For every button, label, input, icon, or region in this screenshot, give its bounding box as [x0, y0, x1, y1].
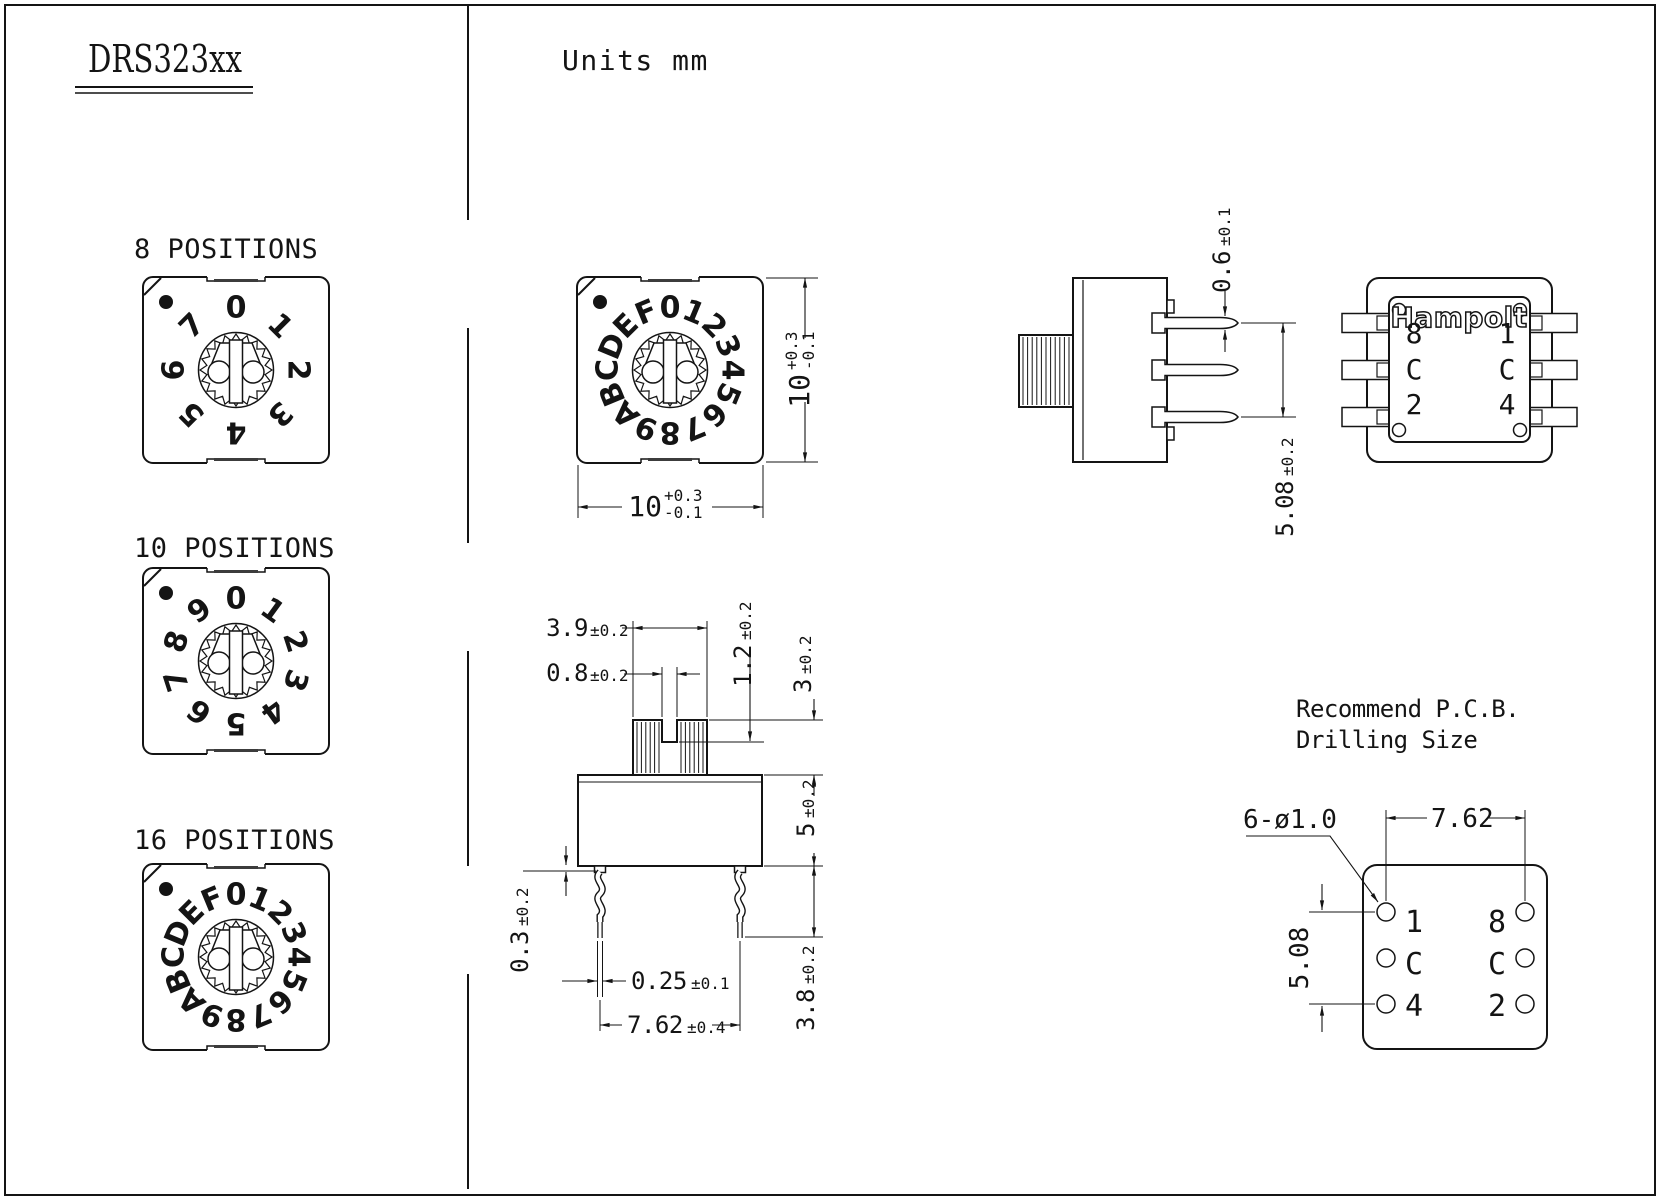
svg-text:±0.2: ±0.2	[736, 601, 755, 640]
units-label: Units mm	[562, 44, 709, 77]
dial-position-label: 4	[715, 360, 750, 381]
rotor-slot	[664, 340, 677, 403]
rotor-pivot-left	[208, 948, 230, 970]
svg-text:±0.2: ±0.2	[513, 887, 532, 926]
rivet-bottom-right	[1514, 424, 1527, 437]
svg-text:-0.1: -0.1	[799, 331, 818, 370]
svg-text:10: 10	[628, 490, 662, 523]
dial-position-label: 0	[226, 291, 247, 326]
datasheet-page: DRS323xx Units mm 8 POSITIONS 01234567 1…	[0, 0, 1660, 1200]
hole-c-right	[1516, 949, 1534, 967]
indicator-dot	[159, 586, 173, 600]
dim-hole-callout: 6-ø1.0	[1243, 805, 1378, 902]
mount-tab-top	[1167, 300, 1174, 313]
dim-pin-width: 0.25 ±0.1	[562, 941, 730, 997]
dial-8-switch: 01234567	[143, 275, 329, 466]
rotor-pivot-right	[242, 361, 264, 383]
hole-callout-label: 6-ø1.0	[1243, 805, 1337, 835]
back-pin-4: 4	[1499, 388, 1516, 421]
back-pin-c-right: C	[1499, 353, 1516, 386]
front-view: 3.9 ±0.2 0.8 ±0.2 1.2 ±0.2 3	[506, 601, 823, 1039]
hole-2	[1516, 995, 1534, 1013]
rotor-pivot-right	[676, 361, 698, 383]
svg-text:±0.2: ±0.2	[1278, 437, 1297, 476]
svg-text:-0.1: -0.1	[664, 503, 703, 522]
top-view: 0123456789ABCDEF 10 +0.3 -0.1 10 +0.3 -0…	[577, 275, 818, 524]
dial-position-label: 4	[281, 947, 316, 968]
svg-text:±0.2: ±0.2	[796, 635, 815, 674]
back-view: Hampolt 8 1 C C 2 4	[1342, 278, 1577, 462]
rivet-bottom-left	[1393, 424, 1406, 437]
mount-tab-bottom	[1167, 427, 1174, 440]
dim-body-height-front: 5 ±0.2	[764, 777, 823, 866]
dial-8-section: 8 POSITIONS 01234567	[134, 234, 329, 466]
back-pin-c-left: C	[1406, 353, 1423, 386]
front-pins	[595, 866, 746, 938]
dial-position-label: 8	[660, 415, 681, 450]
pin-side	[1152, 407, 1238, 427]
rotor-pivot-left	[208, 652, 230, 674]
dial-position-label: 4	[226, 415, 247, 450]
indicator-dot	[593, 295, 607, 309]
svg-text:3: 3	[789, 679, 817, 693]
hole-8	[1516, 903, 1534, 921]
dim-pin-thickness: 0.6 ±0.1	[1208, 207, 1236, 352]
pin-side	[1152, 360, 1238, 380]
svg-text:0.3: 0.3	[506, 931, 534, 973]
dial-position-label: 0	[226, 582, 247, 617]
pcb-v-pitch-label: 5.08	[1285, 927, 1315, 990]
pcb-label-c-left: C	[1405, 947, 1423, 982]
svg-text:1.2: 1.2	[729, 645, 757, 687]
indicator-dot	[159, 295, 173, 309]
dial-10-switch: 0123456789	[143, 566, 329, 757]
svg-text:0.8: 0.8	[546, 659, 588, 687]
rotor-pivot-left	[642, 361, 664, 383]
dial-10-label: 10 POSITIONS	[134, 533, 335, 564]
pcb-label-8: 8	[1488, 905, 1506, 940]
svg-text:3.8: 3.8	[792, 989, 820, 1031]
dim-body-width: 10 +0.3 -0.1	[578, 465, 763, 523]
svg-text:±0.2: ±0.2	[590, 621, 629, 640]
dial-10-section: 10 POSITIONS 0123456789	[134, 533, 335, 757]
dial-position-label: 0	[226, 878, 247, 913]
knob-front	[633, 720, 707, 775]
svg-text:±0.2: ±0.2	[590, 666, 629, 685]
page-title: DRS323xx	[88, 37, 242, 81]
technical-drawing: DRS323xx Units mm 8 POSITIONS 01234567 1…	[0, 0, 1660, 1200]
dim-slot-width: 0.8 ±0.2	[546, 659, 700, 717]
svg-text:0.6: 0.6	[1208, 251, 1236, 293]
pcb-label-4: 4	[1405, 989, 1423, 1024]
dim-pin-length: 3.8 ±0.2	[745, 866, 823, 1031]
rotor-slot	[230, 631, 243, 694]
pcb-label-c-right: C	[1488, 947, 1506, 982]
svg-text:±0.2: ±0.2	[799, 945, 818, 984]
svg-text:±0.4: ±0.4	[687, 1018, 726, 1037]
side-view: 0.6 ±0.1 5.08 ±0.2	[1019, 207, 1299, 536]
hole-c-left	[1377, 949, 1395, 967]
dim-pin-pitch-side: 5.08 ±0.2	[1241, 323, 1299, 537]
pcb-title-line2: Drilling Size	[1296, 726, 1477, 754]
dim-pcb-v-pitch: 5.08	[1285, 884, 1375, 1032]
svg-text:10: 10	[783, 374, 816, 408]
rotor-slot	[230, 340, 243, 403]
pcb-label-2: 2	[1488, 989, 1506, 1024]
dial-position-label: 8	[226, 1002, 247, 1037]
dial-16-switch: 0123456789ABCDEF	[143, 862, 329, 1053]
rotor-pivot-left	[208, 361, 230, 383]
dial-position-label: 2	[281, 360, 316, 381]
dial-position-label: 5	[226, 706, 247, 741]
rotor-slot	[230, 927, 243, 990]
dim-knob-height: 3 ±0.2	[709, 635, 823, 796]
dial-position-label: 0	[660, 291, 681, 326]
hole-1	[1377, 903, 1395, 921]
dial-16-section: 16 POSITIONS 0123456789ABCDEF	[134, 825, 335, 1053]
title-block: DRS323xx	[75, 37, 253, 93]
rotor-pivot-right	[242, 948, 264, 970]
svg-text:0.25: 0.25	[631, 967, 687, 995]
dial-16-label: 16 POSITIONS	[134, 825, 335, 856]
svg-text:5.08: 5.08	[1271, 481, 1299, 537]
dim-body-height: 10 +0.3 -0.1	[766, 278, 818, 462]
svg-text:±0.1: ±0.1	[691, 974, 730, 993]
pcb-view: Recommend P.C.B. Drilling Size 1 8 C C 4…	[1243, 695, 1547, 1049]
dial-8-label: 8 POSITIONS	[134, 234, 318, 265]
svg-text:7.62: 7.62	[627, 1011, 683, 1039]
back-pin-2: 2	[1406, 388, 1423, 421]
back-pin-8: 8	[1406, 317, 1423, 350]
indicator-dot	[159, 882, 173, 896]
pcb-title-line1: Recommend P.C.B.	[1296, 695, 1519, 723]
svg-text:±0.1: ±0.1	[1215, 207, 1234, 246]
rotor-pivot-right	[242, 652, 264, 674]
svg-text:3.9: 3.9	[546, 614, 588, 642]
svg-text:5: 5	[792, 823, 820, 837]
dial-position-label: 6	[157, 360, 192, 381]
hole-4	[1377, 995, 1395, 1013]
switch-body-front	[578, 775, 762, 866]
svg-text:±0.2: ±0.2	[799, 779, 818, 818]
back-pin-1: 1	[1499, 317, 1516, 350]
pcb-h-pitch-label: 7.62	[1431, 804, 1494, 834]
pcb-label-1: 1	[1405, 905, 1423, 940]
top-view-switch: 0123456789ABCDEF	[577, 275, 763, 466]
